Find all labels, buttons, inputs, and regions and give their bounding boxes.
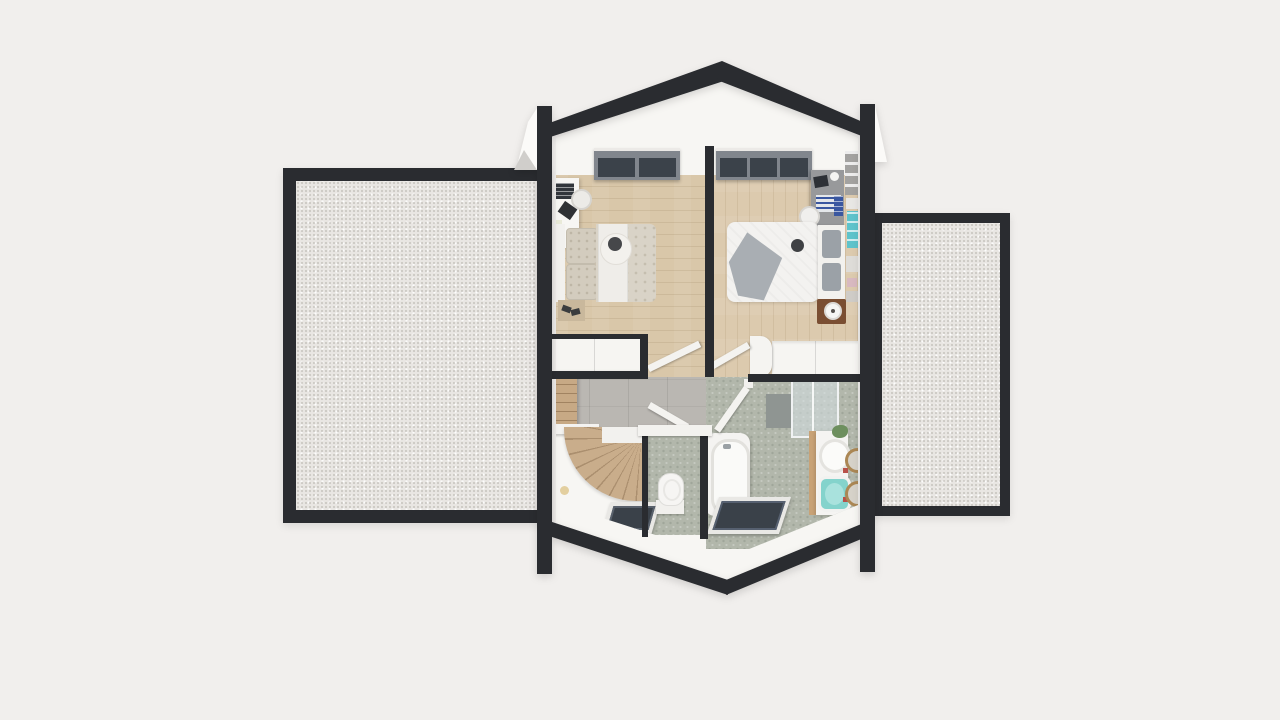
eaves-left [543, 519, 728, 595]
corner-post-right [860, 104, 875, 572]
corner-post-left [537, 106, 552, 574]
eaves-right [726, 520, 871, 595]
gable-wedge [875, 106, 887, 162]
floorplan-render-canvas [0, 0, 1280, 720]
roof-ridge-right [717, 61, 872, 140]
roof-ridge-left [541, 61, 727, 140]
roof-structure [0, 0, 1280, 720]
